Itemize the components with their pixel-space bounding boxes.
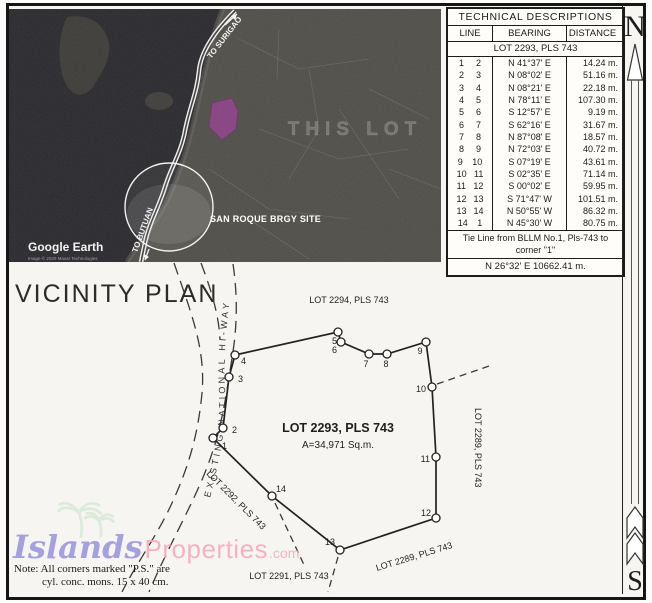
bearing-cell: N 72°03' E — [492, 143, 567, 155]
line-from: 1 — [459, 57, 464, 69]
survey-plan-sheet: THIS LOT SAN ROQUE BRGY SITE TO SURIGAO … — [0, 0, 652, 603]
distance-cell: 43.61 m. — [567, 156, 623, 168]
line-to: 6 — [476, 106, 481, 118]
table-row: 1011S 02°35' E71.14 m. — [448, 168, 623, 180]
bearing-cell: N 08°21' E — [492, 82, 567, 94]
note-line-2: cyl. conc. mons. 15 x 40 cm. — [14, 576, 170, 589]
bearing-cell: S 02°35' E — [492, 168, 567, 180]
line-from: 3 — [459, 82, 464, 94]
bearing-cell: S 07°19' E — [492, 156, 567, 168]
table-row: 12N 41°37' E14.24 m. — [448, 57, 623, 69]
bearing-cell: N 78°11' E — [492, 94, 567, 106]
bearing-cell: S 71°47' W — [492, 193, 567, 205]
north-arrow-strip: N S — [622, 6, 647, 594]
bearing-cell: S 00°02' E — [492, 180, 567, 192]
distance-cell: 40.72 m. — [567, 143, 623, 155]
line-to: 9 — [476, 143, 481, 155]
islandsproperties-watermark: IslandsProperties.com — [13, 528, 299, 566]
col-line: LINE — [448, 26, 492, 41]
distance-cell: 22.18 m. — [567, 82, 623, 94]
line-from: 6 — [459, 119, 464, 131]
bearing-cell: S 62°16' E — [492, 119, 567, 131]
corners-note: Note: All corners marked "P.S." are cyl.… — [14, 563, 170, 588]
table-column-headers: LINE BEARING DISTANCE — [448, 26, 623, 42]
table-row: 141N 45°30' W80.75 m. — [448, 217, 623, 229]
satellite-map-art: THIS LOT SAN ROQUE BRGY SITE TO SURIGAO … — [9, 9, 441, 262]
distance-cell: 107.30 m. — [567, 94, 623, 106]
watermark-properties: Properties — [145, 534, 269, 565]
table-row: 67S 62°16' E31.67 m. — [448, 119, 623, 131]
table-row: 89N 72°03' E40.72 m. — [448, 143, 623, 155]
tie-line-value: N 26°32' E 10662.41 m. — [448, 258, 623, 275]
table-row: 78N 87°08' E18.57 m. — [448, 131, 623, 143]
watermark-islands: Islands — [13, 528, 143, 566]
lot-header-row: LOT 2293, PLS 743 — [448, 42, 623, 57]
line-to: 5 — [476, 94, 481, 106]
line-to: 11 — [474, 168, 483, 180]
distance-cell: 80.75 m. — [567, 217, 623, 229]
distance-cell: 31.67 m. — [567, 119, 623, 131]
compass-south-letter: S — [627, 566, 643, 594]
note-line-1: Note: All corners marked "P.S." are — [14, 563, 170, 576]
line-to: 7 — [476, 119, 481, 131]
table-row: 1213S 71°47' W101.51 m. — [448, 193, 623, 205]
table-row: 56S 12°57' E9.19 m. — [448, 106, 623, 118]
line-to: 2 — [476, 57, 481, 69]
col-distance: DISTANCE — [567, 26, 623, 41]
table-row: 1314N 50°55' W86.32 m. — [448, 205, 623, 217]
distance-cell: 9.19 m. — [567, 106, 623, 118]
bearing-cell: N 87°08' E — [492, 131, 567, 143]
line-from: 14 — [458, 217, 468, 229]
satellite-map: THIS LOT SAN ROQUE BRGY SITE TO SURIGAO … — [9, 9, 441, 262]
bearing-cell: N 41°37' E — [492, 57, 567, 69]
arrow-fletching-bottom — [627, 533, 643, 564]
arrowhead-icon — [628, 44, 643, 80]
tie-line-text-1: Tie Line from BLLM No.1, Pls-743 to — [448, 232, 623, 245]
table-row: 1112S 00°02' E59.95 m. — [448, 180, 623, 192]
distance-cell: 51.16 m. — [567, 69, 623, 81]
line-from: 7 — [459, 131, 464, 143]
watermark-com: .com — [269, 545, 299, 561]
vicinity-plan-title: VICINITY PLAN — [15, 280, 218, 309]
line-from: 11 — [457, 180, 466, 192]
tie-line-text-2: corner "1" — [448, 244, 623, 257]
line-to: 8 — [476, 131, 481, 143]
line-from: 4 — [459, 94, 464, 106]
table-row: 45N 78°11' E107.30 m. — [448, 94, 623, 106]
line-to: 10 — [472, 156, 482, 168]
north-arrow: N S — [623, 6, 647, 594]
line-to: 13 — [473, 193, 483, 205]
line-to: 1 — [477, 217, 482, 229]
technical-descriptions-table: TECHNICAL DESCRIPTIONS LINE BEARING DIST… — [446, 7, 625, 277]
line-from: 10 — [457, 168, 467, 180]
line-from: 12 — [456, 193, 466, 205]
table-title: TECHNICAL DESCRIPTIONS — [448, 9, 623, 26]
bearing-cell: N 08°02' E — [492, 69, 567, 81]
line-to: 14 — [473, 205, 483, 217]
bearing-cell: N 45°30' W — [492, 217, 567, 229]
tie-line-note: Tie Line from BLLM No.1, Pls-743 to corn… — [448, 230, 623, 258]
line-from: 5 — [459, 106, 464, 118]
line-from: 2 — [459, 69, 464, 81]
map-grain-texture — [9, 9, 441, 262]
table-row: 910S 07°19' E43.61 m. — [448, 156, 623, 168]
distance-cell: 71.14 m. — [567, 168, 623, 180]
line-from: 8 — [459, 143, 464, 155]
distance-cell: 86.32 m. — [567, 205, 623, 217]
distance-cell: 59.95 m. — [567, 180, 623, 192]
bearing-cell: S 12°57' E — [492, 106, 567, 118]
distance-cell: 14.24 m. — [567, 57, 623, 69]
compass-north-letter: N — [624, 10, 646, 43]
col-bearing: BEARING — [492, 26, 567, 41]
distance-cell: 18.57 m. — [567, 131, 623, 143]
distance-cell: 101.51 m. — [567, 193, 623, 205]
table-row: 23N 08°02' E51.16 m. — [448, 69, 623, 81]
line-to: 12 — [473, 180, 483, 192]
line-from: 9 — [458, 156, 463, 168]
table-row: 34N 08°21' E22.18 m. — [448, 82, 623, 94]
line-to: 3 — [476, 69, 481, 81]
line-to: 4 — [476, 82, 481, 94]
bearing-cell: N 50°55' W — [492, 205, 567, 217]
line-from: 13 — [456, 205, 466, 217]
